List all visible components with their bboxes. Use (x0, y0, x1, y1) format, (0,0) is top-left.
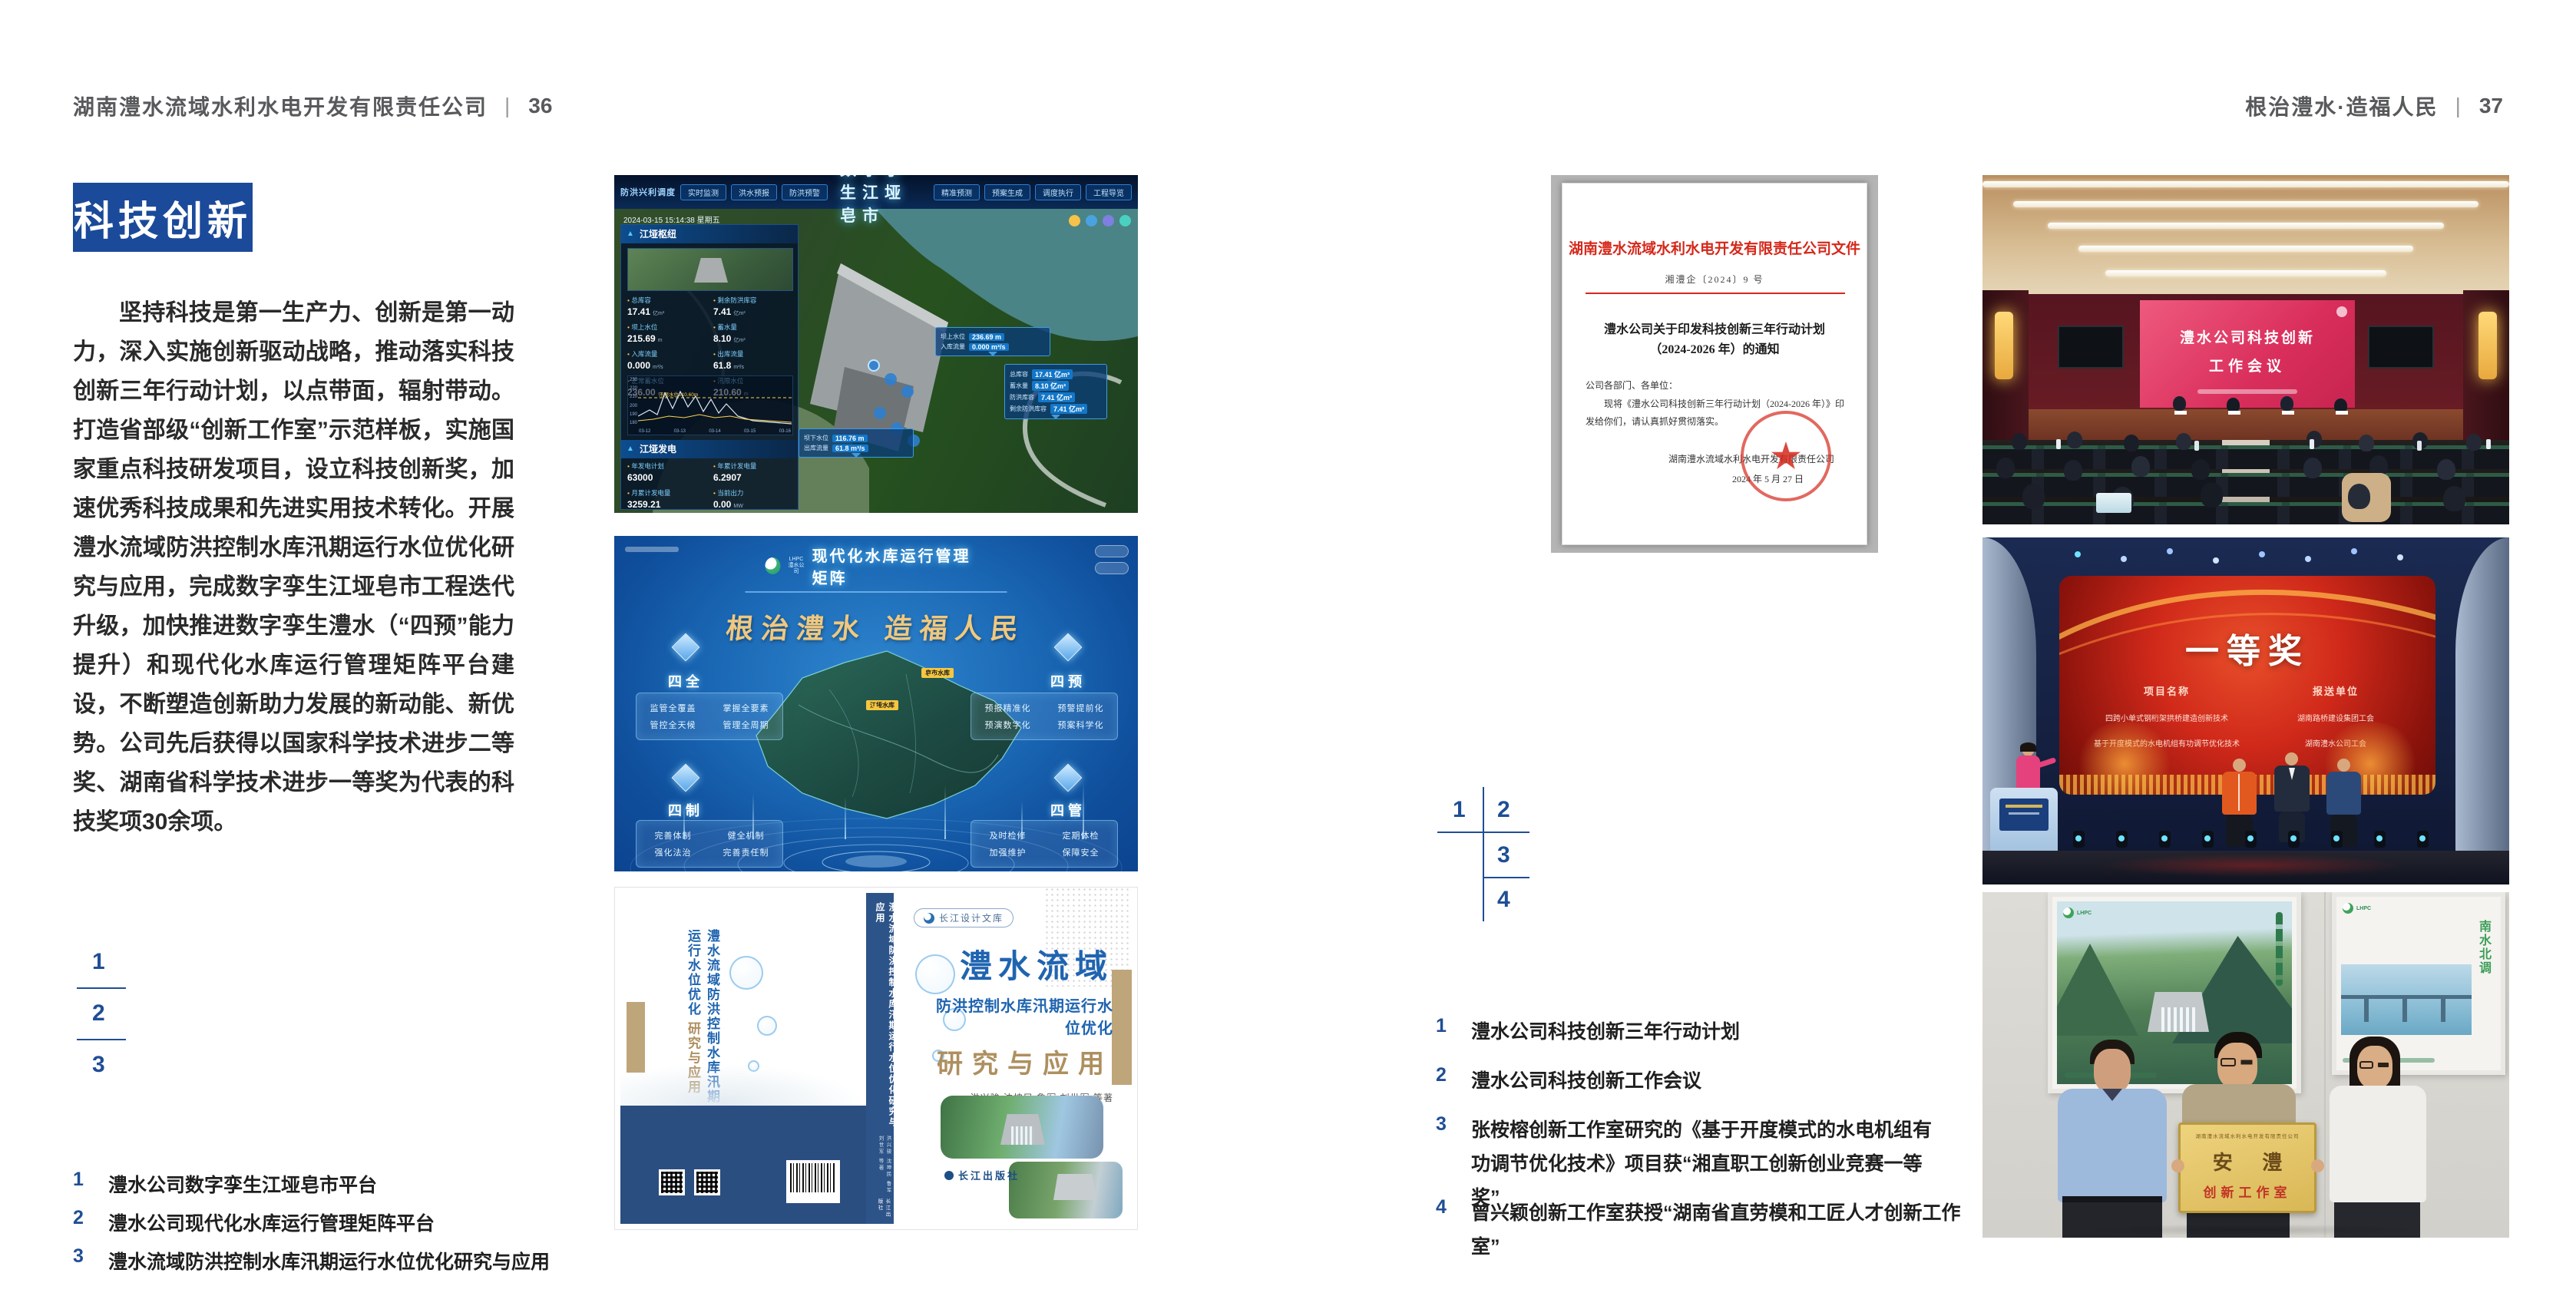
figure-index-2: 2 (92, 1000, 105, 1027)
seat-row (1982, 477, 2509, 497)
page-header-right: 根治澧水·造福人民 | 37 (2245, 91, 2503, 121)
ceiling-light (2013, 201, 2478, 207)
index-hline1 (1437, 832, 1529, 833)
caption-left-1: 1 澧水公司数字孪生江垭皂市平台 (73, 1169, 564, 1202)
tab-project-tour[interactable]: 工程导览 (1086, 184, 1132, 200)
figure-book-cover: 澧水流域防洪控制水库汛期运行水位优化 研究与应用 澧水流域防洪控制水库汛期运行水… (614, 887, 1138, 1230)
caption-right-1: 1 澧水公司科技创新三年行动计划 (1436, 1015, 1966, 1049)
screen-date-bar (2197, 389, 2297, 394)
settings-icon[interactable] (1119, 215, 1131, 226)
screen-line1: 澧水公司科技创新 (2140, 326, 2355, 347)
publisher-mark: 长江出版社 (944, 1168, 1020, 1182)
group-icon-siquan (672, 633, 700, 662)
group-name-siquan: 四全 (651, 671, 720, 691)
spine-authors: 洪兴骏 沈坤民 鲁军 刘世军 等著 (876, 1136, 891, 1197)
fullscreen-button[interactable] (1095, 545, 1129, 557)
index-hline2 (1483, 877, 1529, 878)
header-divider: | (504, 94, 511, 118)
group-icon-sizhi (672, 764, 700, 792)
document-paper: 湖南澧水流域水利水电开发有限责任公司文件 湘澧企〔2024〕9 号 澧水公司关于… (1562, 183, 1867, 545)
section-title: 科技创新 (73, 183, 253, 252)
light-pillar (683, 805, 685, 839)
tab-flood-warning[interactable]: 防洪预警 (782, 184, 828, 200)
group-name-siyu: 四预 (1033, 671, 1103, 691)
caption-number: 1 (1436, 1015, 1456, 1049)
caption-number: 3 (73, 1245, 93, 1279)
photo-innovation-meeting: 澧水公司科技创新 工作会议 (1982, 175, 2509, 524)
document-title-line1: 澧水公司关于印发科技创新三年行动计划 (1562, 319, 1867, 337)
caption-text: 澧水公司科技创新工作会议 (1471, 1064, 1701, 1098)
audience-row3-heads (2022, 484, 2045, 509)
audience-row2-heads (1996, 458, 2015, 478)
chart-y-ticks: 230220210200190180 (630, 378, 637, 425)
screen-line2: 工作会议 (2140, 355, 2355, 375)
page-number-left: 36 (528, 94, 552, 118)
company-name: 湖南澧水流域水利水电开发有限责任公司 (73, 91, 488, 121)
caption-number: 1 (73, 1169, 93, 1202)
photo-studio-plaque: LHPC LHPC 南水北调 (1982, 892, 2509, 1238)
seat-row (1982, 506, 2509, 524)
wall-lamp (2478, 312, 2497, 379)
cover-photo-dam2 (1009, 1162, 1123, 1218)
header-divider: | (2455, 94, 2462, 118)
innovation-studio-plaque: 湖南澧水流域水利水电开发有限责任公司 安 澧 创新工作室 (2178, 1122, 2316, 1213)
figure-official-document: 湖南澧水流域水利水电开发有限责任公司文件 湘澧企〔2024〕9 号 澧水公司关于… (1551, 175, 1878, 553)
dashboard-corner-label: 防洪兴利调度 (620, 186, 676, 198)
dashboard-title: 数字孪生江垭皂市 (840, 175, 921, 226)
series-badge: 长江设计文库 (914, 908, 1014, 927)
light-pillar (944, 785, 946, 839)
dam-camera-inset (627, 248, 793, 291)
back-tan-tab (627, 1002, 645, 1073)
matrix-title: 现代化水库运行管理矩阵 (812, 544, 987, 588)
dashboard-left-panel: 江垭枢纽 总库容17.41亿m³ 剩余防洪库容7.41亿m³ 坝上水位215.6… (620, 224, 799, 510)
caption-right-2: 2 澧水公司科技创新工作会议 (1436, 1064, 1966, 1098)
hand (2171, 1159, 2184, 1172)
gate-markers[interactable] (868, 359, 880, 372)
spine-title: 澧水流域防洪控制水库汛期运行水位优化研究与应用 (874, 902, 900, 1132)
figure-index-3: 3 (1497, 842, 1510, 868)
plaque-header: 湖南澧水流域水利水电开发有限责任公司 (2181, 1132, 2314, 1139)
plaque-subtitle: 创新工作室 (2181, 1182, 2314, 1201)
panel-power-title: 江垭发电 (621, 440, 798, 458)
caption-text: 澧水公司现代化水库运行管理矩阵平台 (108, 1207, 435, 1241)
water-bottles (2056, 439, 2061, 449)
document-red-rule (1586, 293, 1845, 294)
power-stats-grid: 年发电计划63000 年累计发电量6.2907 月累计发电量3259.21 当前… (627, 461, 793, 510)
caption-text: 曾兴颖创新工作室获授“湖南省直劳模和工匠人才创新工作室” (1471, 1196, 1966, 1264)
group-panel-siquan: 监管全覆盖掌握全要素管控全天候管理全周期 (636, 693, 783, 740)
ceiling-light (2078, 246, 2413, 252)
figure-index-4: 4 (1497, 887, 1510, 913)
front-title-block: 澧水流域 防洪控制水库汛期运行水位优化 研究与应用 洪兴骏 沈坤民 鲁军 刘世军… (921, 941, 1113, 1104)
chart-plot (638, 378, 792, 427)
index-divider (77, 1039, 126, 1040)
group-icon-siyu (1054, 633, 1083, 662)
bubble-art (757, 1016, 777, 1036)
slogan: 根治澧水·造福人民 (2245, 91, 2438, 121)
stat: 年发电计划63000 (627, 461, 707, 484)
wall-seam (2324, 892, 2326, 1238)
caption-right-4: 4 曾兴颖创新工作室获授“湖南省直劳模和工匠人才创新工作室” (1436, 1196, 1966, 1264)
podium (1990, 788, 2058, 857)
panel-hub-title: 江垭枢纽 (621, 225, 798, 243)
ceiling-light (1982, 181, 2509, 187)
caption-number: 4 (1436, 1196, 1456, 1264)
magazine-spread: 湖南澧水流域水利水电开发有限责任公司 | 36 根治澧水·造福人民 | 37 科… (0, 0, 2576, 1306)
publisher-logo-icon (944, 1171, 954, 1180)
side-display (2368, 326, 2434, 369)
side-display (2058, 326, 2124, 369)
series-name: 长江设计文库 (939, 911, 1004, 924)
light-pillar (752, 793, 754, 839)
body-paragraph: 坚持科技是第一生产力、创新是第一动力，深入实施创新驱动战略，推动落实科技创新三年… (73, 293, 514, 841)
tissue-box (2096, 493, 2131, 513)
stat: 月累计发电量3259.21 (627, 488, 707, 510)
stat: 坝上水位215.69m (627, 322, 707, 346)
figure-index-1: 1 (1453, 797, 1466, 823)
hand (2311, 1159, 2324, 1172)
front-title-3: 研究与应用 (921, 1043, 1113, 1080)
callout-downstream: 坝下水位116.76 m 出库流量61.8 m³/s (799, 428, 914, 458)
company-seal: ★ (1741, 411, 1831, 501)
ceiling-light (2105, 270, 2386, 276)
matrix-timestamp-bar (625, 547, 679, 552)
callout-upstream: 坝上水位236.69 m 入库流量0.000 m³/s (935, 327, 1050, 356)
caption-number: 2 (73, 1207, 93, 1241)
stat: 剩余防洪库容7.41亿m³ (713, 296, 793, 319)
page-header-left: 湖南澧水流域水利水电开发有限责任公司 | 36 (73, 91, 552, 121)
caption-left-2: 2 澧水公司现代化水库运行管理矩阵平台 (73, 1207, 564, 1241)
water-level-chart: 230220210200190180 汛限水位210.60m 03-1203-1… (627, 375, 793, 435)
tab-realtime-monitoring[interactable]: 实时监测 (680, 184, 726, 200)
floor-reflection (2098, 854, 2405, 877)
caption-left-3: 3 澧水流域防洪控制水库汛期运行水位优化研究与应用 (73, 1245, 595, 1279)
document-number: 湘澧企〔2024〕9 号 (1562, 273, 1867, 286)
tab-plan-generation[interactable]: 预案生成 (984, 184, 1030, 200)
figure-index-2: 2 (1497, 797, 1510, 823)
stat: 蓄水量8.10亿m³ (713, 322, 793, 346)
rostrum-desk (2029, 409, 2463, 440)
isbn-barcode (786, 1160, 840, 1203)
desk-papers (2174, 411, 2187, 415)
caption-number: 2 (1436, 1064, 1456, 1098)
cover-photo-dam1 (941, 1096, 1103, 1159)
light-pillar (1083, 782, 1084, 839)
stat: 出库流量61.8m³/s (713, 349, 793, 372)
qr-code (694, 1169, 720, 1195)
radar-rings (614, 789, 1138, 871)
stat: 入库流量0.000m³/s (627, 349, 707, 372)
cover-navy-band (620, 1106, 894, 1224)
figure-index-1: 1 (92, 949, 105, 975)
poster-vertical-text: 南水北调 (2475, 920, 2493, 1004)
led-screen: 一等奖 项目名称 四跨小单式钢桁架拱桥建造创新技术 基于开度模式的水电机组有功调… (2059, 576, 2435, 795)
document-title-line2: （2024-2026 年）的通知 (1562, 339, 1867, 357)
ceiling-light (2048, 223, 2444, 229)
screen-logo-icon (2336, 306, 2347, 317)
tab-precise-forecast[interactable]: 精准预测 (934, 184, 980, 200)
plaque-title: 安 澧 (2181, 1147, 2314, 1175)
locate-icon[interactable] (1103, 215, 1114, 226)
figure-matrix-platform: LHPC澧水公司 现代化水库运行管理矩阵 根治澧水 造福人民 皂市水库 江垭水库… (614, 536, 1138, 871)
calligraphy-strokes (2276, 912, 2283, 986)
lhpc-logo-icon (766, 557, 781, 574)
menu-button[interactable] (1095, 562, 1129, 574)
lhpc-logo-text: LHPC澧水公司 (786, 557, 805, 575)
front-tan-bar (1112, 970, 1132, 1085)
user-icon[interactable] (1069, 215, 1080, 226)
rostrum-speakers (2173, 396, 2186, 411)
page-number-right: 37 (2479, 94, 2503, 118)
bubble-art (729, 956, 763, 990)
audience-row1-heads (2012, 433, 2027, 450)
document-salutation: 公司各部门、各单位： (1586, 377, 1847, 395)
spine-publisher: 长江出版社 (875, 1199, 891, 1222)
dashboard-top-bar: 防洪兴利调度 实时监测 洪水预报 防洪预警 数字孪生江垭皂市 精准预测 预案生成… (614, 175, 1138, 209)
figure-digital-twin-platform: 防洪兴利调度 实时监测 洪水预报 防洪预警 数字孪生江垭皂市 精准预测 预案生成… (614, 175, 1138, 513)
lhpc-logo: LHPC (2063, 908, 2092, 918)
beige-coat-attendee (2342, 473, 2391, 522)
matrix-header: LHPC澧水公司 现代化水库运行管理矩阵 (746, 541, 1007, 593)
index-divider (77, 987, 126, 989)
seal-star-icon: ★ (1771, 437, 1801, 476)
meeting-screen: 澧水公司科技创新 工作会议 (2140, 300, 2355, 408)
front-title-2: 防洪控制水库汛期运行水位优化 (921, 994, 1113, 1038)
callout-reservoir: 总库容17.41 亿m³ 蓄水量8.10 亿m³ 防洪库容7.41 亿m³ 剩余… (1004, 364, 1107, 419)
stat: 当前出力0.00MW (713, 488, 793, 510)
dam-shape (694, 258, 728, 283)
light-pillar (1021, 801, 1023, 839)
chart-x-ticks: 03-1203-1303-1403-1503-16 (639, 429, 791, 434)
map-label-jiangya[interactable]: 江垭水库 (866, 700, 898, 710)
series-logo-icon (924, 913, 934, 924)
group-panel-siyu: 预报精准化预警提前化预演数字化预案科学化 (971, 693, 1118, 740)
tab-dispatch-execution[interactable]: 调度执行 (1035, 184, 1081, 200)
ceiling (1982, 175, 2509, 298)
caption-text: 澧水公司科技创新三年行动计划 (1471, 1015, 1740, 1049)
poster-zaoshi: LHPC (2048, 892, 2301, 1093)
book-spine: 澧水流域防洪控制水库汛期运行水位优化研究与应用 洪兴骏 沈坤民 鲁军 刘世军 等… (866, 893, 894, 1224)
index-vline (1483, 787, 1484, 921)
group-icon-siguan (1054, 764, 1083, 792)
caption-text: 澧水公司数字孪生江垭皂市平台 (108, 1169, 377, 1202)
matrix-slogan: 根治澧水 造福人民 (724, 607, 1028, 646)
qr-code (659, 1169, 685, 1195)
floor-shadow (2075, 1224, 2428, 1236)
dashboard-timestamp: 2024-03-15 15:14:38 星期五 (623, 213, 720, 225)
lhpc-logo: LHPC (2343, 903, 2371, 914)
light-pillar (845, 797, 846, 839)
tab-flood-forecast[interactable]: 洪水预报 (731, 184, 777, 200)
light-lenses (2075, 835, 2082, 841)
stat: 年累计发电量6.2907 (713, 461, 793, 484)
wall-lamp (1995, 312, 2013, 379)
stat: 总库容17.41亿m³ (627, 296, 707, 319)
seat-row (1982, 449, 2509, 469)
document-red-header: 湖南澧水流域水利水电开发有限责任公司文件 (1562, 237, 1867, 258)
layers-icon[interactable] (1086, 215, 1097, 226)
photo-award-ceremony: 一等奖 项目名称 四跨小单式钢桁架拱桥建造创新技术 基于开度模式的水电机组有功调… (1982, 537, 2509, 884)
caption-text: 澧水流域防洪控制水库汛期运行水位优化研究与应用 (108, 1245, 550, 1279)
publisher-name: 长江出版社 (958, 1168, 1020, 1182)
front-title-1: 澧水流域 (921, 941, 1113, 987)
figure-index-3: 3 (92, 1052, 105, 1078)
back-wave-art (620, 1063, 866, 1106)
map-label-zaoshi[interactable]: 皂市水库 (921, 668, 954, 678)
truss-lights (2075, 551, 2081, 557)
stage-pillar-right (2455, 537, 2509, 884)
award-headline: 一等奖 (2059, 623, 2435, 673)
